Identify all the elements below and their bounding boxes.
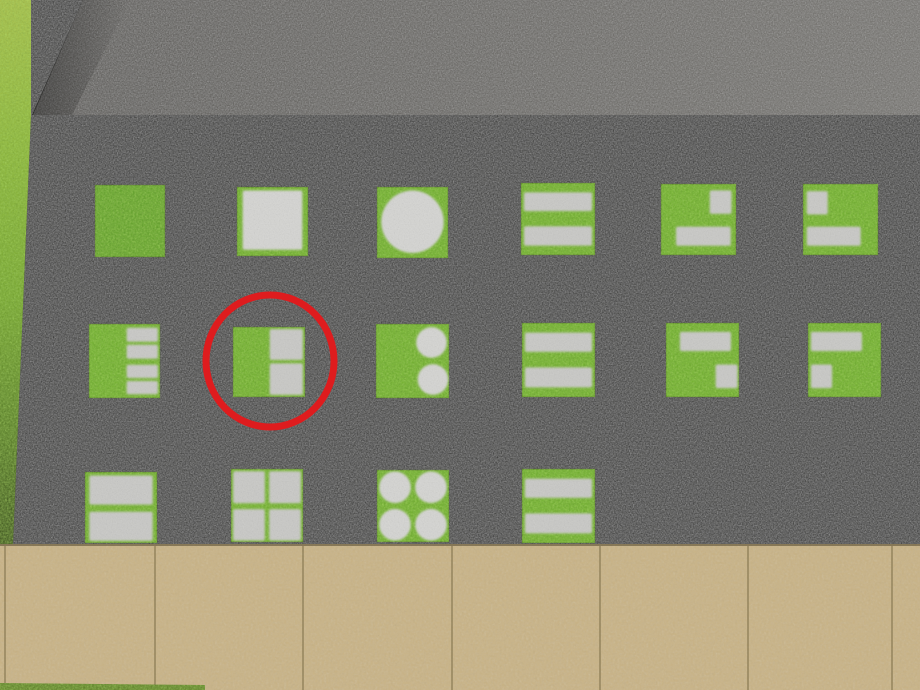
stone-circle [415,509,447,541]
tile-stones [381,191,443,253]
concrete-strip [33,0,920,115]
stone-circle [416,327,447,358]
stone-slab [127,365,158,378]
sidewalk-seam [451,546,453,690]
sidewalk [0,544,920,690]
stone-slab [807,227,861,246]
garden-tile-two-squares-right-highlighted[interactable] [233,327,305,397]
garden-tile-four-bars-right[interactable] [89,324,160,398]
garden-tile-four-squares[interactable] [231,469,303,542]
sidewalk-seam [599,546,601,690]
stone-slab [807,191,828,214]
stone-slab [270,329,303,360]
game-viewport [0,0,920,690]
stone-circle [415,471,447,503]
stone-circle [379,471,411,503]
garden-tile-square-tl-bar-bottom[interactable] [803,184,878,255]
stone-slab [269,471,301,503]
sidewalk-seam [4,546,6,690]
garden-tile-square-tr-bar-bottom[interactable] [661,184,736,255]
stone-slab [127,328,158,342]
stone-slab [524,226,592,245]
stone-circle [381,191,443,253]
stone-slab [233,471,265,503]
garden-tile-bar-top-square-bl[interactable] [808,323,881,397]
stone-slab [525,513,592,533]
stone-slab [676,227,731,246]
stone-slab [525,479,592,498]
stone-slab [233,509,265,540]
sidewalk-top-edge [0,544,920,546]
garden-tile-two-bars[interactable] [522,323,595,397]
garden-tile-two-big-bars[interactable] [85,472,157,543]
tile-grass [95,185,165,257]
sidewalk-seam [302,546,304,690]
stone-slab [127,345,158,359]
stone-slab [811,364,832,388]
stone-slab [716,364,738,388]
stone-slab [524,192,592,211]
stone-slab [710,190,732,213]
sidewalk-seam [891,546,893,690]
garden-tile-two-bars[interactable] [521,183,595,255]
garden-tile-two-circles-right[interactable] [376,324,449,398]
stone-slab [270,363,303,395]
garden-tile-big-square[interactable] [237,187,308,256]
stone-slab [127,381,158,394]
stone-slab [525,367,592,387]
stone-slab [525,333,592,352]
sidewalk-seam [154,546,156,690]
garden-tile-bar-top-square-br[interactable] [666,323,739,397]
stone-circle [418,364,449,395]
terrain-scene [0,0,920,690]
stone-slab [89,476,152,505]
sidewalk-seam [747,546,749,690]
garden-tile-four-circles[interactable] [377,470,449,542]
garden-tile-plain[interactable] [95,185,165,257]
stone-slab [269,509,301,540]
stone-slab [680,332,731,351]
stone-circle [379,509,411,541]
stone-slab [243,190,303,249]
stone-slab [811,332,862,351]
stone-slab [89,512,152,541]
garden-tile-two-bars[interactable] [522,469,595,543]
tile-stones [243,190,303,249]
garden-tile-big-circle[interactable] [377,187,448,258]
